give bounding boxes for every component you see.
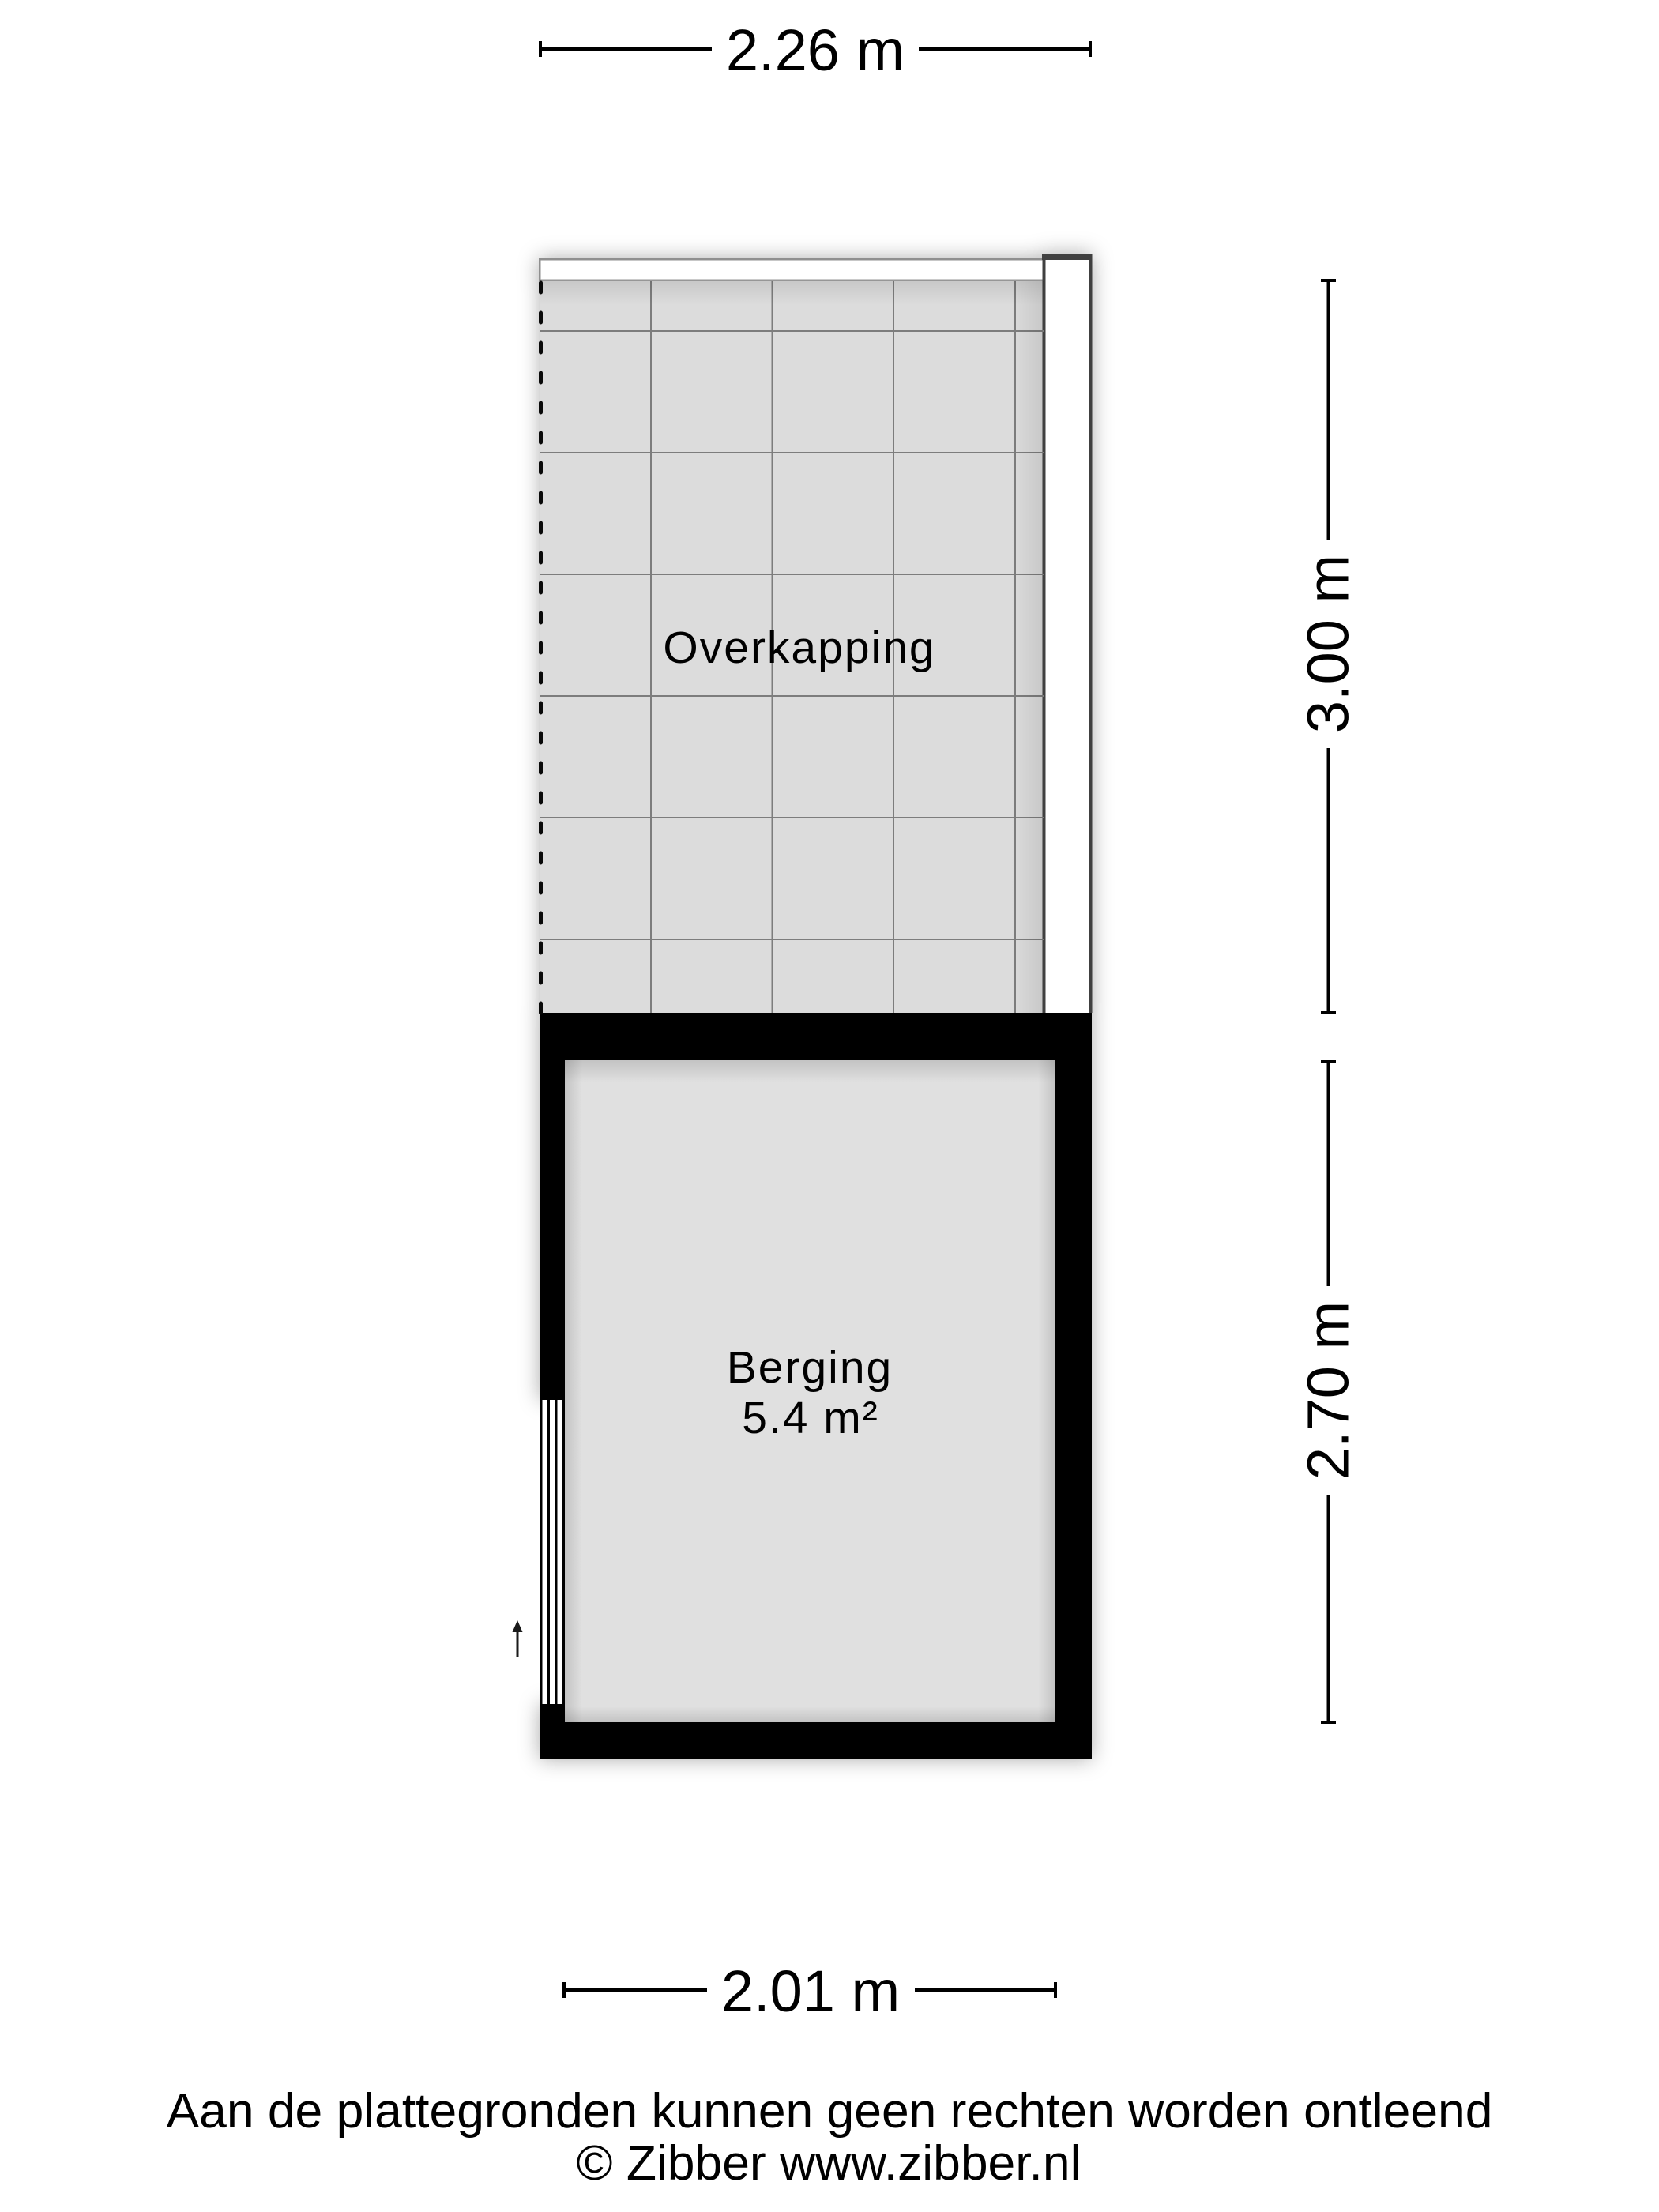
svg-text:© Zibber www.zibber.nl: © Zibber www.zibber.nl	[577, 2136, 1082, 2191]
svg-text:3.00 m: 3.00 m	[1296, 555, 1361, 733]
svg-text:Berging: Berging	[727, 1342, 893, 1393]
svg-text:2.01 m: 2.01 m	[721, 1958, 900, 2024]
svg-text:2.26 m: 2.26 m	[726, 17, 905, 83]
svg-text:Overkapping: Overkapping	[663, 623, 935, 673]
svg-text:2.70 m: 2.70 m	[1296, 1301, 1361, 1480]
svg-text:Aan de plattegronden kunnen ge: Aan de plattegronden kunnen geen rechten…	[167, 2084, 1493, 2139]
svg-text:5.4 m²: 5.4 m²	[742, 1393, 879, 1443]
